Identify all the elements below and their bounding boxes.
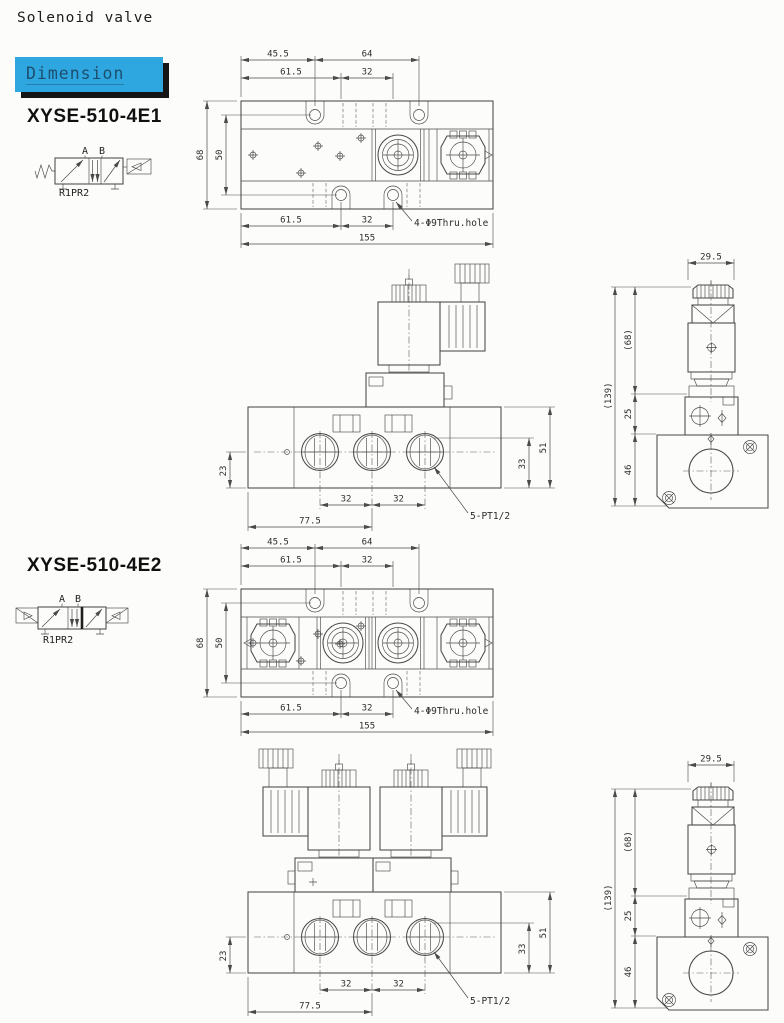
position-dividers	[89, 158, 101, 184]
solenoid-symbol-left	[16, 608, 38, 623]
pilot-side-tab	[288, 871, 295, 884]
solenoid-assembly-right	[380, 749, 491, 858]
exhaust-ticks	[41, 629, 104, 634]
top-view-drawing-4e2	[193, 528, 528, 753]
pilot-side-tab	[451, 871, 458, 884]
front-view-drawing-4e2	[218, 740, 568, 1023]
pilot-block-use	[366, 373, 444, 407]
catalog-page: 45.5 64 61.5 32 68 50 61.5 32 155	[0, 0, 784, 1023]
bottom-ports-label: R1PR2	[59, 188, 89, 199]
solenoid-assembly	[378, 264, 489, 373]
front-view-base-use	[219, 892, 555, 1016]
pilot-block-right-use	[373, 858, 451, 892]
pilot-circles-use	[372, 129, 424, 181]
side-view-use	[604, 253, 768, 509]
pilot-block-left-use	[295, 858, 373, 892]
top-view-base-use	[196, 50, 493, 249]
spring-symbol	[35, 165, 55, 178]
side-view-drawing-4e2	[590, 752, 784, 1023]
hex-nut-use	[437, 129, 492, 181]
flow-arrow	[42, 609, 60, 627]
side-view-use	[604, 755, 768, 1011]
pilot-side-tab	[444, 386, 452, 399]
port-a-label: A	[82, 146, 88, 157]
cross-mark	[309, 878, 317, 886]
page-title: Solenoid valve	[17, 10, 153, 26]
port-b-label: B	[75, 594, 81, 605]
model-name-4e1: XYSE-510-4E1	[27, 106, 162, 128]
pilot-circles-use	[372, 617, 424, 669]
front-view-drawing-4e1	[218, 255, 568, 545]
bottom-ports-label: R1PR2	[43, 635, 73, 646]
port-b-label: B	[99, 146, 105, 157]
model-name-4e2: XYSE-510-4E2	[27, 555, 162, 577]
front-view-base-use	[219, 407, 555, 531]
solenoid-assembly-left	[259, 749, 370, 858]
top-view-drawing-4e1	[193, 40, 528, 265]
port-a-label: A	[59, 594, 65, 605]
dimension-section-badge: Dimension	[15, 57, 163, 92]
flow-arrow	[104, 160, 120, 182]
dimension-badge-label: Dimension	[26, 64, 124, 85]
solenoid-symbol-right	[106, 608, 128, 623]
flow-arrow	[61, 160, 83, 182]
hex-nut-right-use	[437, 617, 492, 669]
flow-arrow	[86, 609, 102, 627]
valve-symbol-4e1: A B R1PR2	[25, 141, 160, 219]
side-view-drawing-4e1	[590, 250, 784, 535]
valve-symbol-4e2: A B R1PR2	[12, 590, 162, 668]
top-view-base-use	[196, 538, 493, 737]
solenoid-symbol	[127, 159, 151, 174]
